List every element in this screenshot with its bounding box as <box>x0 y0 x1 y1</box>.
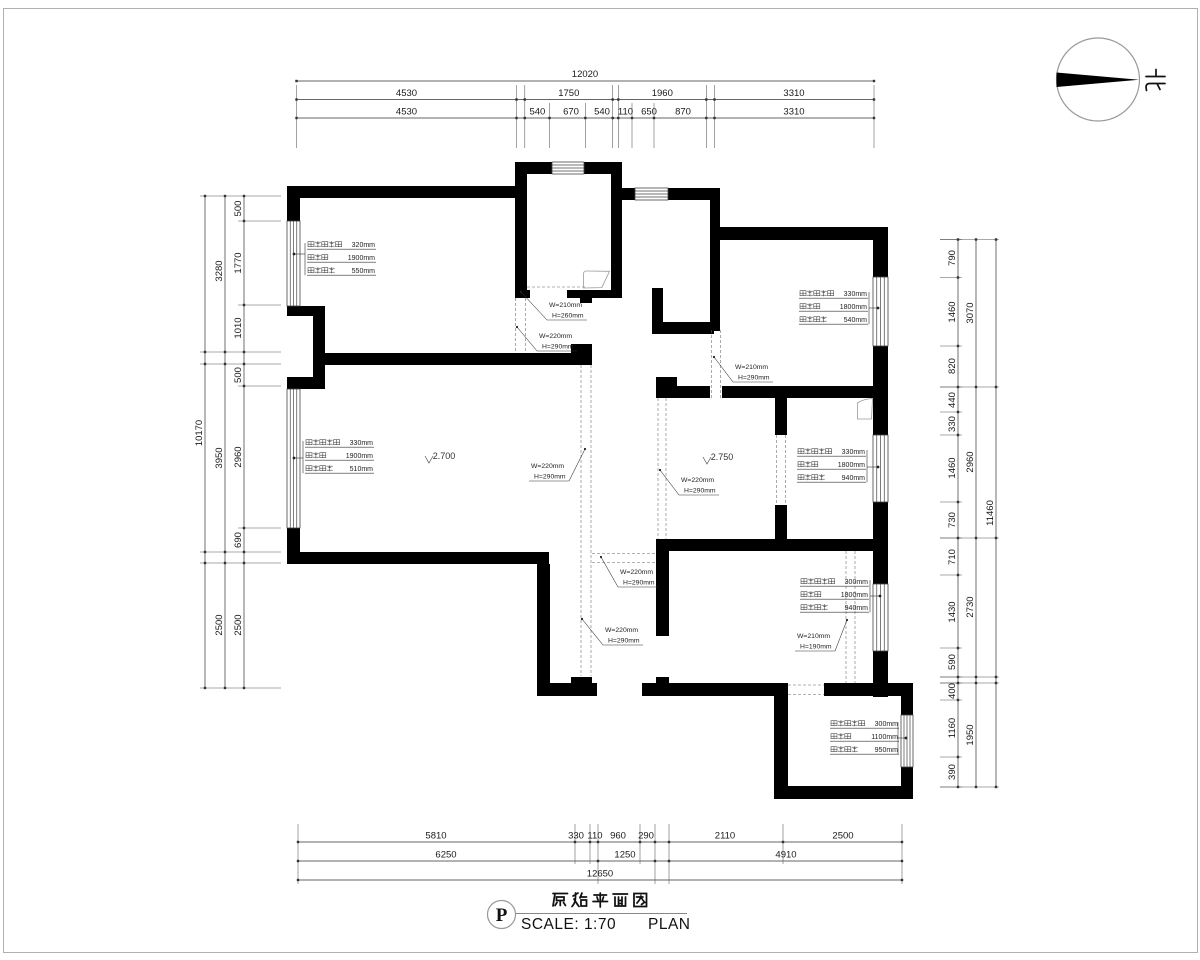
svg-text:1800mm: 1800mm <box>841 592 868 599</box>
svg-text:H=190mm: H=190mm <box>800 644 832 651</box>
svg-text:330: 330 <box>568 831 584 842</box>
svg-text:3070: 3070 <box>965 302 976 323</box>
svg-text:P: P <box>496 905 508 926</box>
svg-text:12020: 12020 <box>572 69 598 80</box>
svg-text:1800mm: 1800mm <box>838 462 865 469</box>
svg-text:W=210mm: W=210mm <box>549 302 582 309</box>
svg-text:3310: 3310 <box>783 88 804 99</box>
svg-text:670: 670 <box>563 107 579 118</box>
svg-text:870: 870 <box>675 107 691 118</box>
svg-text:590: 590 <box>947 654 958 670</box>
svg-text:4910: 4910 <box>775 850 796 861</box>
svg-text:H=290mm: H=290mm <box>608 638 640 645</box>
svg-text:2.700: 2.700 <box>433 451 456 461</box>
svg-text:500: 500 <box>233 201 244 217</box>
svg-text:550mm: 550mm <box>352 268 376 275</box>
svg-text:12650: 12650 <box>587 869 613 880</box>
svg-text:3950: 3950 <box>214 447 225 468</box>
svg-text:2.750: 2.750 <box>711 452 734 462</box>
svg-text:400: 400 <box>947 683 958 699</box>
svg-text:5810: 5810 <box>425 831 446 842</box>
svg-text:300mm: 300mm <box>845 579 869 586</box>
svg-text:W=220mm: W=220mm <box>539 333 572 340</box>
svg-text:2500: 2500 <box>233 614 244 635</box>
svg-text:1770: 1770 <box>233 252 244 273</box>
svg-text:320mm: 320mm <box>352 242 376 249</box>
svg-text:PLAN: PLAN <box>648 916 691 933</box>
svg-text:330: 330 <box>947 416 958 432</box>
svg-text:3280: 3280 <box>214 260 225 281</box>
svg-text:300mm: 300mm <box>875 721 899 728</box>
svg-text:W=220mm: W=220mm <box>681 477 714 484</box>
svg-text:330mm: 330mm <box>844 291 868 298</box>
svg-text:960: 960 <box>610 831 626 842</box>
svg-text:510mm: 510mm <box>350 466 374 473</box>
svg-text:1010: 1010 <box>233 317 244 338</box>
svg-text:110: 110 <box>587 831 602 842</box>
svg-text:1460: 1460 <box>947 301 958 322</box>
svg-text:W=220mm: W=220mm <box>531 463 564 470</box>
svg-text:1460: 1460 <box>947 457 958 478</box>
svg-text:540: 540 <box>529 107 545 118</box>
svg-text:1750: 1750 <box>558 88 579 99</box>
svg-text:650: 650 <box>641 107 657 118</box>
svg-text:1900mm: 1900mm <box>346 453 373 460</box>
svg-text:H=290mm: H=290mm <box>534 474 566 481</box>
svg-text:730: 730 <box>947 512 958 528</box>
svg-text:2960: 2960 <box>233 446 244 467</box>
svg-text:4530: 4530 <box>396 88 417 99</box>
svg-text:6250: 6250 <box>435 850 456 861</box>
svg-text:950mm: 950mm <box>875 747 899 754</box>
svg-text:H=290mm: H=290mm <box>684 488 716 495</box>
svg-text:1950: 1950 <box>965 724 976 745</box>
svg-text:W=220mm: W=220mm <box>620 569 653 576</box>
svg-text:1960: 1960 <box>652 88 673 99</box>
svg-text:H=260mm: H=260mm <box>552 313 584 320</box>
svg-text:690: 690 <box>233 532 244 548</box>
svg-text:H=290mm: H=290mm <box>623 580 655 587</box>
svg-text:10170: 10170 <box>194 420 205 446</box>
svg-text:330mm: 330mm <box>350 440 374 447</box>
svg-text:710: 710 <box>947 549 958 565</box>
svg-text:11460: 11460 <box>985 500 996 526</box>
svg-text:3310: 3310 <box>783 107 804 118</box>
svg-text:790: 790 <box>947 250 958 266</box>
svg-text:290: 290 <box>638 831 654 842</box>
svg-text:2110: 2110 <box>715 831 735 842</box>
svg-text:1100mm: 1100mm <box>871 734 898 741</box>
svg-text:330mm: 330mm <box>842 449 866 456</box>
svg-text:440: 440 <box>947 392 958 408</box>
svg-text:2500: 2500 <box>214 614 225 635</box>
svg-text:110: 110 <box>618 107 633 118</box>
svg-text:2730: 2730 <box>965 596 976 617</box>
svg-text:940mm: 940mm <box>842 475 866 482</box>
svg-text:1900mm: 1900mm <box>348 255 375 262</box>
svg-text:SCALE: 1:70: SCALE: 1:70 <box>521 916 616 933</box>
svg-text:1430: 1430 <box>947 601 958 622</box>
svg-text:500: 500 <box>233 367 244 383</box>
svg-text:1800mm: 1800mm <box>840 304 867 311</box>
svg-text:4530: 4530 <box>396 107 417 118</box>
svg-text:1160: 1160 <box>947 718 958 738</box>
svg-text:540mm: 540mm <box>844 317 868 324</box>
svg-text:820: 820 <box>947 358 958 374</box>
svg-text:2960: 2960 <box>965 451 976 472</box>
svg-text:W=220mm: W=220mm <box>605 627 638 634</box>
svg-text:390: 390 <box>947 764 958 780</box>
svg-text:W=210mm: W=210mm <box>735 364 768 371</box>
svg-text:1250: 1250 <box>614 850 635 861</box>
svg-text:H=290mm: H=290mm <box>542 344 574 351</box>
svg-text:W=210mm: W=210mm <box>797 633 830 640</box>
svg-text:H=290mm: H=290mm <box>738 375 770 382</box>
svg-text:940mm: 940mm <box>845 605 869 612</box>
svg-text:2500: 2500 <box>832 831 853 842</box>
svg-text:540: 540 <box>594 107 610 118</box>
